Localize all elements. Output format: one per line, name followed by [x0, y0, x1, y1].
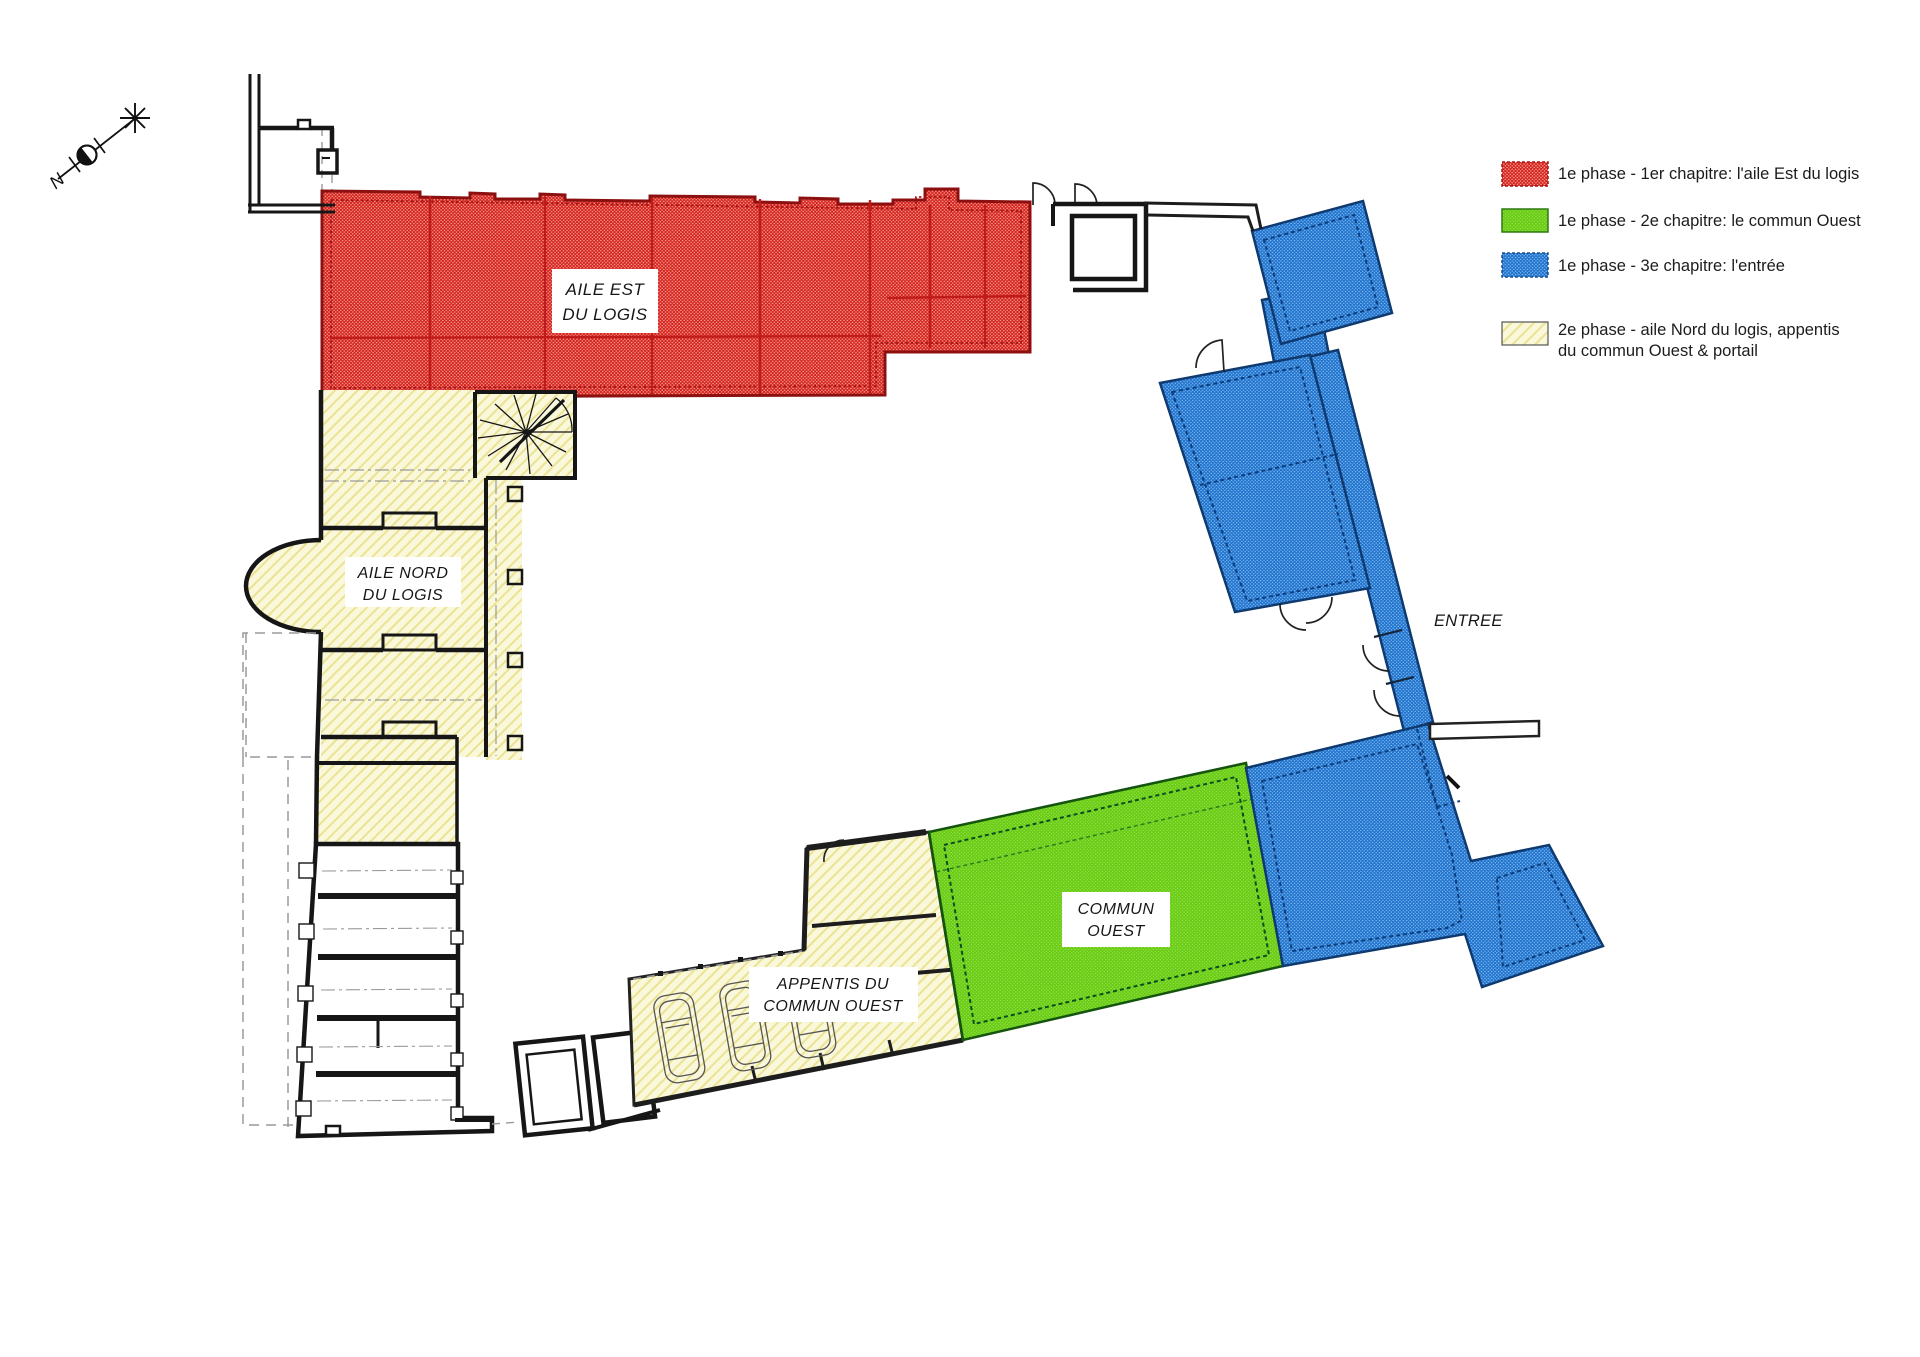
svg-text:DU LOGIS: DU LOGIS [363, 587, 443, 604]
svg-text:1e phase - 2e chapitre: le com: 1e phase - 2e chapitre: le commun Ouest [1558, 212, 1861, 230]
svg-text:ENTREE: ENTREE [1434, 612, 1503, 630]
svg-text:du commun Ouest & portail: du commun Ouest & portail [1558, 342, 1758, 360]
svg-text:OUEST: OUEST [1087, 923, 1145, 940]
svg-text:COMMUN: COMMUN [1078, 901, 1155, 918]
svg-text:2e phase - aile Nord du logis,: 2e phase - aile Nord du logis, appentis [1558, 321, 1840, 339]
svg-text:1e phase - 3e chapitre: l'entr: 1e phase - 3e chapitre: l'entrée [1558, 257, 1785, 275]
svg-text:AILE EST: AILE EST [565, 280, 646, 299]
svg-text:DU LOGIS: DU LOGIS [562, 305, 647, 324]
svg-text:AILE NORD: AILE NORD [357, 565, 449, 582]
svg-text:APPENTIS DU: APPENTIS DU [776, 976, 889, 993]
svg-text:1e phase - 1er chapitre: l'ail: 1e phase - 1er chapitre: l'aile Est du l… [1558, 165, 1859, 183]
svg-text:COMMUN OUEST: COMMUN OUEST [763, 998, 903, 1015]
